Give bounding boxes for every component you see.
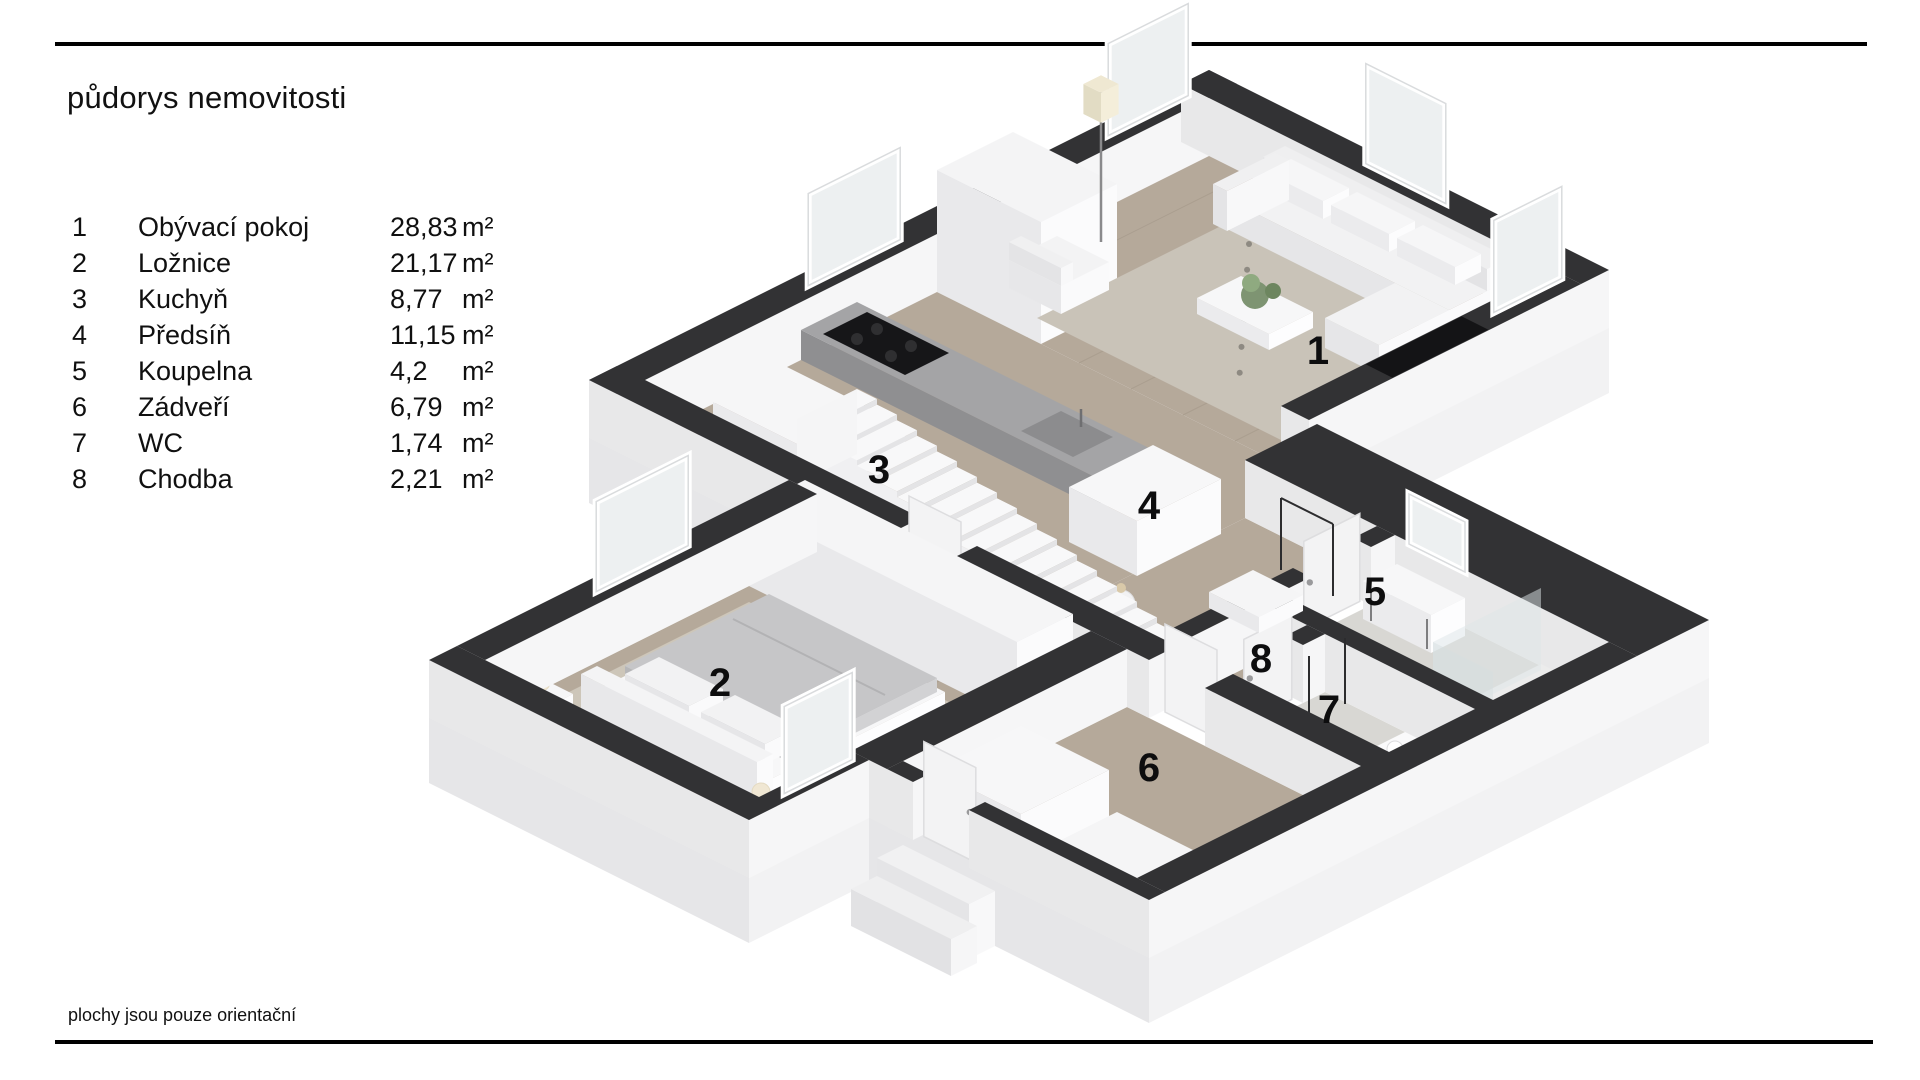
building-3d <box>429 4 1709 1023</box>
room-label-5: 5 <box>1364 570 1386 614</box>
room-label-1: 1 <box>1307 329 1329 373</box>
room-label-4: 4 <box>1138 484 1161 528</box>
page: půdorys nemovitosti 1 Obývací pokoj 28,8… <box>0 0 1920 1080</box>
room-label-8: 8 <box>1250 637 1272 681</box>
floorplan-render: 1 2 3 4 5 6 7 8 <box>0 0 1920 1080</box>
bottom-rule <box>55 1040 1873 1044</box>
footer-note: plochy jsou pouze orientační <box>68 1005 296 1026</box>
room-label-7: 7 <box>1318 688 1340 732</box>
room-label-3: 3 <box>868 448 890 492</box>
room-label-2: 2 <box>709 661 731 705</box>
room-label-6: 6 <box>1138 746 1160 790</box>
